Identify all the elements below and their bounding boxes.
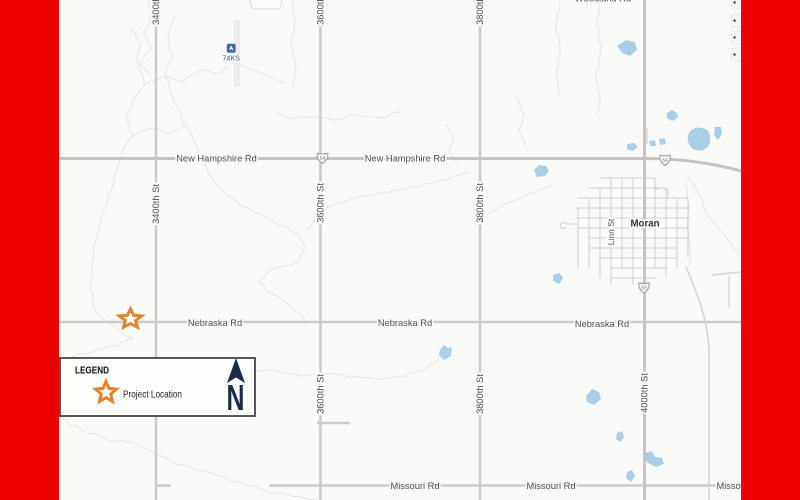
svg-text:4000th St: 4000th St bbox=[640, 373, 650, 413]
svg-text:3600th St: 3600th St bbox=[316, 183, 326, 223]
svg-text:54: 54 bbox=[320, 156, 326, 162]
svg-text:Woodland Rd: Woodland Rd bbox=[575, 0, 631, 4]
svg-text:Project Location: Project Location bbox=[123, 389, 182, 401]
svg-text:54: 54 bbox=[662, 158, 668, 164]
svg-text:3600th St: 3600th St bbox=[316, 0, 326, 25]
svg-text:3800th St: 3800th St bbox=[475, 183, 485, 223]
svg-text:Nebraska Rd: Nebraska Rd bbox=[378, 318, 432, 328]
svg-text:Missouri Rd: Missouri Rd bbox=[390, 481, 439, 491]
svg-text:74KS: 74KS bbox=[222, 54, 240, 63]
svg-text:3400th St: 3400th St bbox=[151, 0, 161, 25]
svg-text:Nebraska Rd: Nebraska Rd bbox=[188, 318, 242, 328]
svg-text:Nebraska Rd: Nebraska Rd bbox=[575, 319, 629, 329]
svg-text:3400th St: 3400th St bbox=[151, 184, 161, 224]
svg-text:3600th St: 3600th St bbox=[316, 374, 326, 414]
svg-text:Moran: Moran bbox=[631, 218, 660, 230]
svg-text:LEGEND: LEGEND bbox=[75, 365, 109, 377]
svg-text:New Hampshire Rd: New Hampshire Rd bbox=[176, 154, 257, 164]
svg-text:59: 59 bbox=[641, 285, 647, 291]
svg-text:3800th St: 3800th St bbox=[475, 0, 485, 25]
svg-text:New Hampshire Rd: New Hampshire Rd bbox=[365, 154, 446, 164]
svg-text:Missouri Rd: Missouri Rd bbox=[526, 481, 575, 491]
svg-text:3800th St: 3800th St bbox=[475, 374, 485, 414]
svg-text:N: N bbox=[227, 377, 245, 418]
svg-text:Linn St: Linn St bbox=[606, 218, 616, 245]
